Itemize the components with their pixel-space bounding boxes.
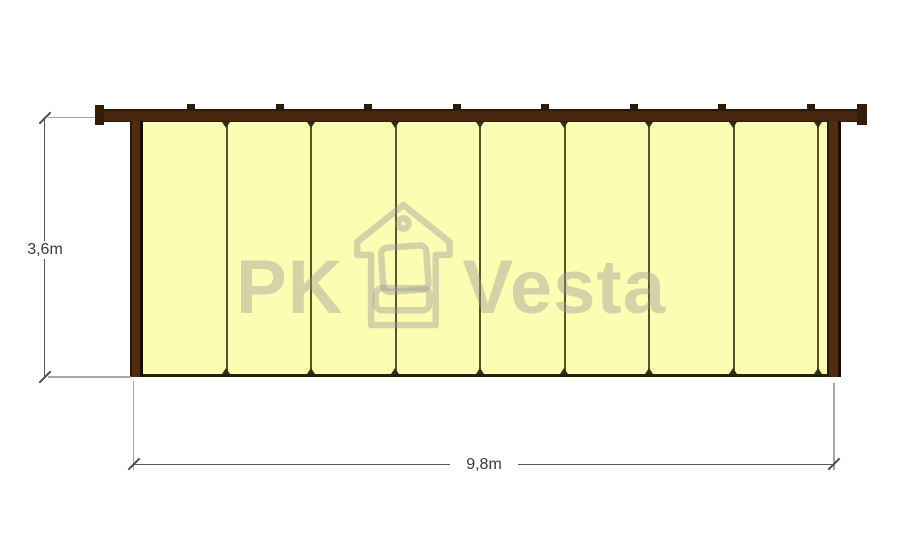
width-dimension-label: 9,8m	[450, 456, 518, 474]
panel-divider	[733, 122, 735, 374]
roof-batten	[276, 104, 284, 110]
width-extension-line-left	[133, 381, 134, 470]
panel-divider	[564, 122, 566, 374]
roof-batten	[453, 104, 461, 110]
wall-panel	[566, 122, 649, 374]
wall-panel	[397, 122, 480, 374]
panel-area	[143, 122, 827, 377]
wall-panel	[650, 122, 733, 374]
wall-panel	[735, 122, 818, 374]
height-extension-line-top	[48, 117, 95, 118]
roof-batten	[364, 104, 372, 110]
roof-batten	[541, 104, 549, 110]
panel-end-strip	[819, 122, 827, 374]
panel-divider	[648, 122, 650, 374]
left-post	[130, 121, 143, 377]
roof-batten	[807, 104, 815, 110]
wall-panel	[481, 122, 564, 374]
panel-divider	[817, 122, 819, 374]
beam-left-cap	[95, 105, 104, 125]
panel-divider	[479, 122, 481, 374]
height-dimension-label: 3,6m	[14, 241, 76, 259]
height-extension-line-bottom	[48, 376, 131, 378]
roof-batten	[630, 104, 638, 110]
height-dim-tick-top	[39, 112, 52, 125]
panel-divider	[395, 122, 397, 374]
elevation-drawing-canvas: PK Vesta 3,6m 9,8m	[0, 0, 900, 534]
right-post	[827, 121, 841, 377]
roof-batten	[718, 104, 726, 110]
panel-divider	[310, 122, 312, 374]
beam-right-cap	[857, 104, 867, 125]
panel-divider	[226, 122, 228, 374]
wall-panel	[312, 122, 395, 374]
wall-panel	[143, 122, 226, 374]
width-extension-line-right	[833, 383, 835, 470]
wall-panel	[228, 122, 311, 374]
top-beam	[102, 109, 864, 122]
roof-batten	[187, 104, 195, 110]
